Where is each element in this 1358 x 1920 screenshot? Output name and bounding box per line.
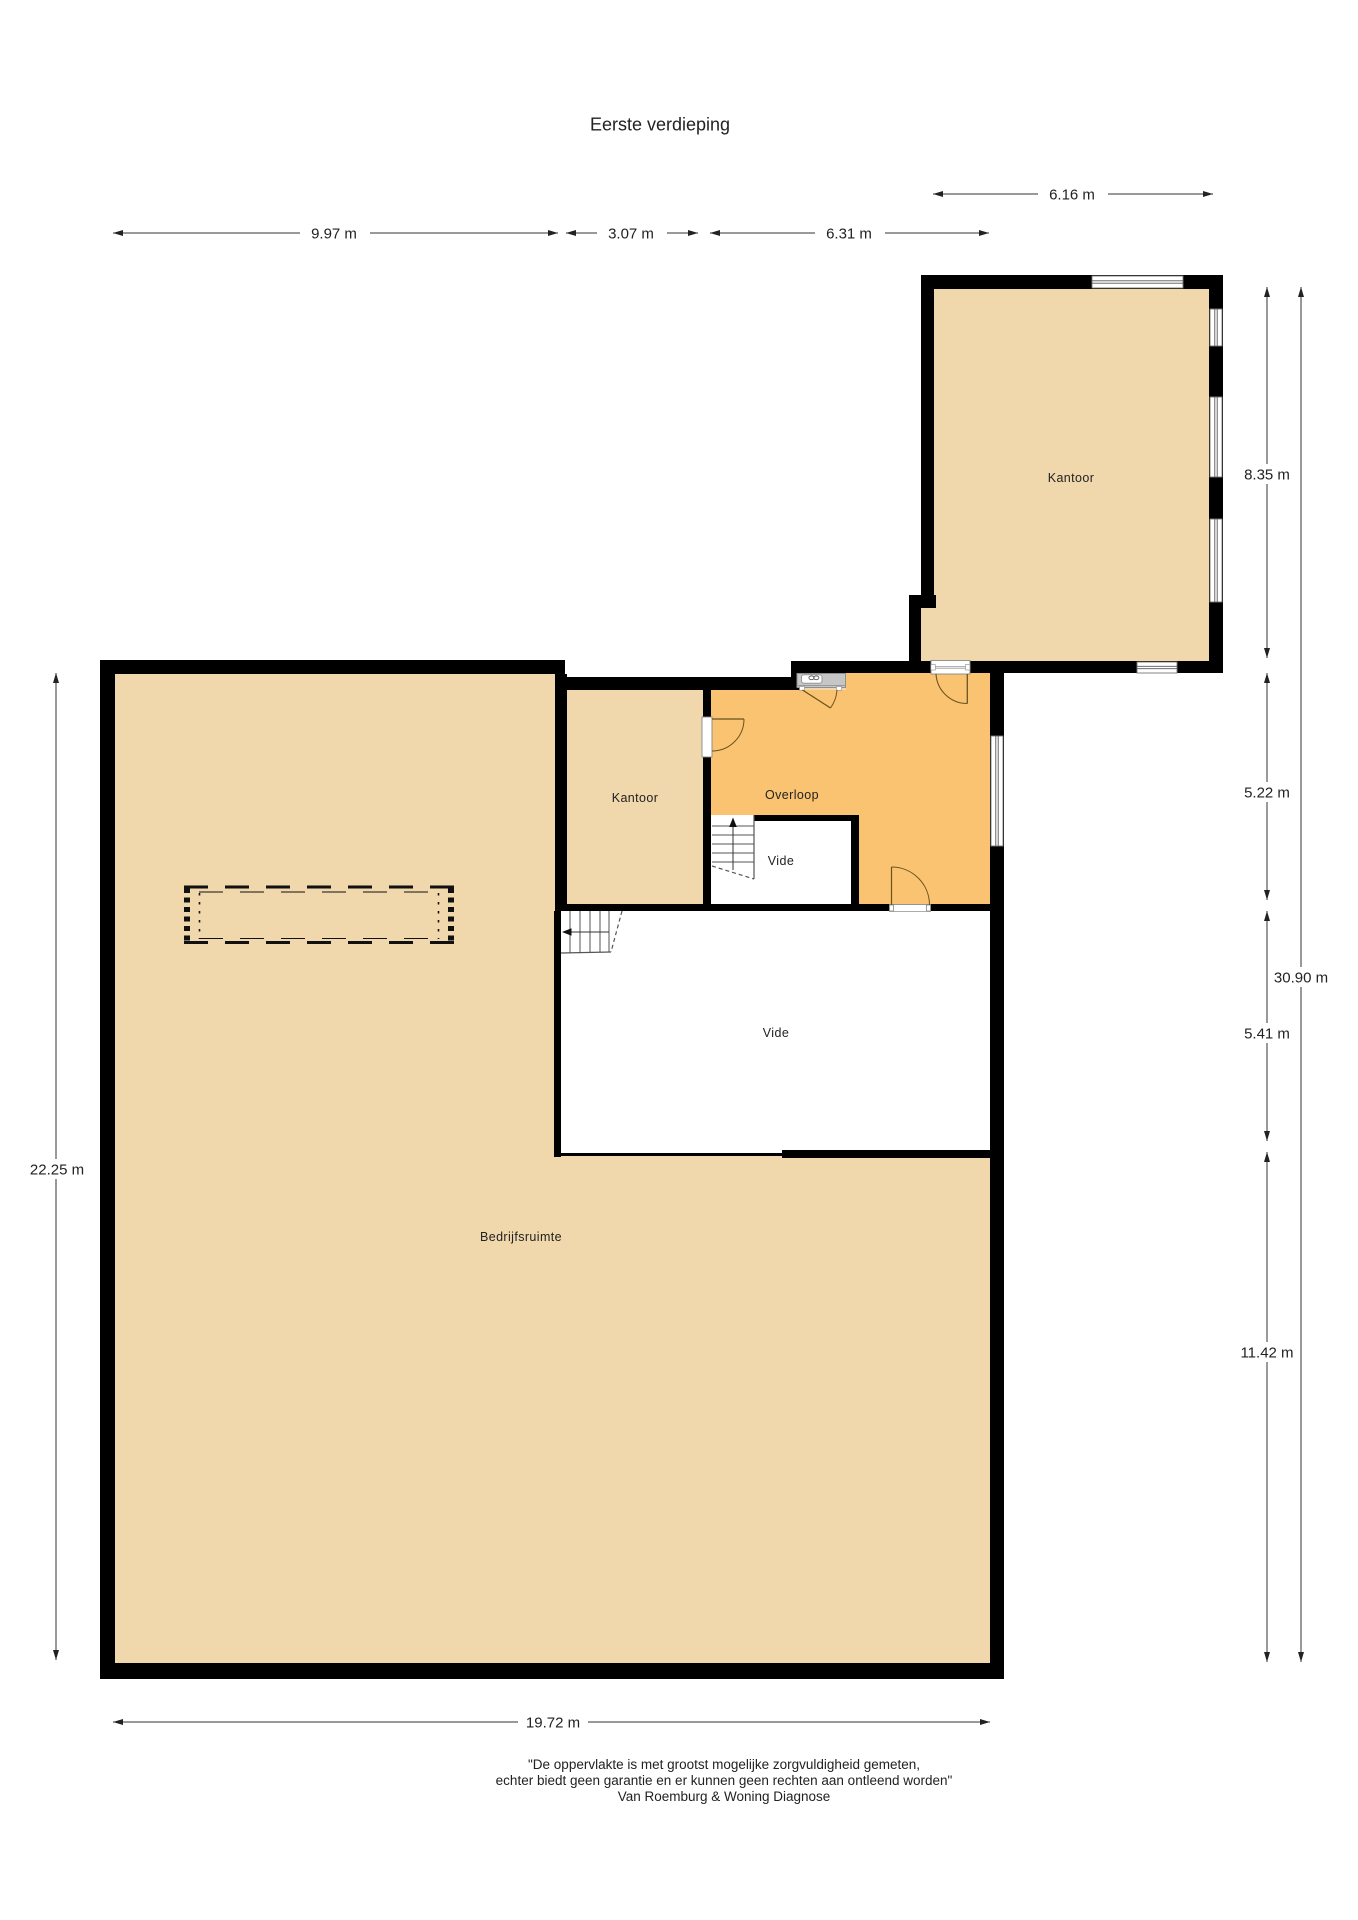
svg-text:22.25 m: 22.25 m <box>30 1162 84 1179</box>
svg-text:Kantoor: Kantoor <box>1048 471 1095 485</box>
svg-text:5.22 m: 5.22 m <box>1244 785 1290 802</box>
svg-text:30.90 m: 30.90 m <box>1274 970 1328 987</box>
svg-text:echter biedt geen garantie en: echter biedt geen garantie en er kunnen … <box>496 1773 953 1788</box>
svg-text:9.97 m: 9.97 m <box>311 226 357 243</box>
svg-text:Bedrijfsruimte: Bedrijfsruimte <box>480 1230 562 1244</box>
svg-text:11.42 m: 11.42 m <box>1240 1345 1293 1362</box>
svg-text:Kantoor: Kantoor <box>612 791 659 805</box>
svg-text:Vide: Vide <box>768 854 794 868</box>
svg-text:Eerste verdieping: Eerste verdieping <box>590 115 730 135</box>
svg-text:8.35 m: 8.35 m <box>1244 467 1290 484</box>
svg-text:6.31 m: 6.31 m <box>826 226 872 243</box>
svg-text:5.41 m: 5.41 m <box>1244 1026 1290 1043</box>
svg-text:3.07 m: 3.07 m <box>608 226 654 243</box>
svg-text:Van Roemburg & Woning Diagnose: Van Roemburg & Woning Diagnose <box>618 1789 831 1804</box>
svg-text:6.16 m: 6.16 m <box>1049 187 1095 204</box>
svg-text:Overloop: Overloop <box>765 788 819 802</box>
svg-text:Vide: Vide <box>763 1026 789 1040</box>
svg-text:19.72 m: 19.72 m <box>526 1715 580 1732</box>
svg-text:"De oppervlakte is met grootst: "De oppervlakte is met grootst mogelijke… <box>528 1757 920 1772</box>
